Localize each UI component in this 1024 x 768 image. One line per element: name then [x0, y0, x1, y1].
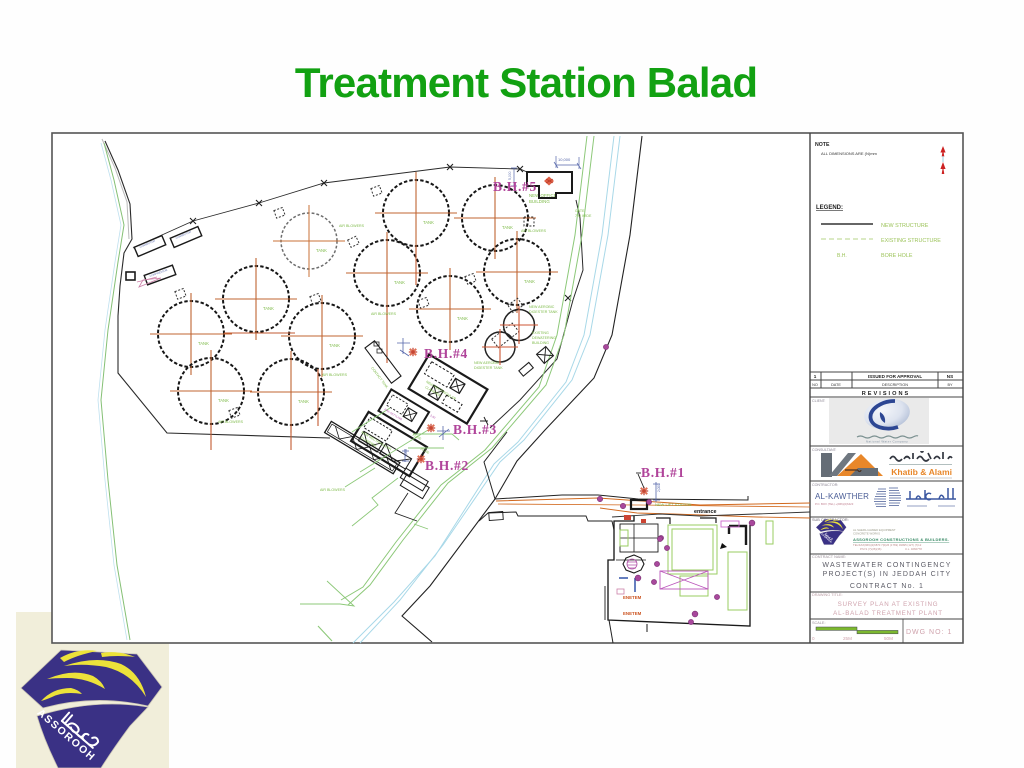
svg-text:PROJECT(S) IN JEDDAH CITY: PROJECT(S) IN JEDDAH CITY — [823, 571, 952, 578]
svg-text:SURVEY PLAN AT EXISTING: SURVEY PLAN AT EXISTING — [838, 601, 939, 608]
svg-text:3,000: 3,000 — [404, 449, 408, 457]
svg-text:entrance: entrance — [694, 509, 716, 515]
svg-text:B.H.#3: B.H.#3 — [453, 422, 497, 437]
svg-text:ENETEM: ENETEM — [623, 611, 642, 616]
svg-text:10,000: 10,000 — [558, 157, 571, 162]
svg-text:BORE HOLE: BORE HOLE — [881, 253, 913, 259]
svg-text:AL-KAWTHER: AL-KAWTHER — [815, 492, 869, 501]
svg-text:NEW LIFT STATION: NEW LIFT STATION — [655, 502, 692, 507]
svg-text:AIR BLOWERS: AIR BLOWERS — [320, 488, 346, 492]
svg-text:AL-BALAD TREATMENT PLANT: AL-BALAD TREATMENT PLANT — [833, 610, 943, 617]
svg-text:LEGEND:: LEGEND: — [816, 205, 843, 211]
svg-text:50M: 50M — [884, 636, 893, 641]
svg-text:7 M WIDE: 7 M WIDE — [575, 214, 592, 218]
svg-text:B.H.#4: B.H.#4 — [424, 346, 468, 361]
svg-text:National Water Company: National Water Company — [866, 440, 908, 444]
svg-text:NEW STRUCTURE: NEW STRUCTURE — [881, 223, 929, 229]
svg-text:DWG NO: 1: DWG NO: 1 — [906, 629, 952, 636]
svg-text:NEW AEROBIC: NEW AEROBIC — [474, 361, 500, 365]
svg-text:B.H.#1: B.H.#1 — [641, 465, 685, 480]
svg-text:CLIENT:: CLIENT: — [812, 399, 826, 403]
svg-text:CONCRETE WORKS: CONCRETE WORKS — [853, 532, 880, 536]
svg-text:Khatib & Alami: Khatib & Alami — [891, 467, 952, 477]
svg-text:DRAWING TITLE:: DRAWING TITLE: — [812, 593, 843, 597]
svg-text:CONSULTANT:: CONSULTANT: — [812, 448, 837, 452]
svg-text:ENETEM: ENETEM — [623, 595, 642, 600]
svg-text:BUILDING: BUILDING — [529, 199, 550, 204]
svg-text:NO: NO — [812, 383, 818, 387]
svg-text:B.H.#2: B.H.#2 — [425, 458, 469, 473]
svg-text:EXISTING: EXISTING — [532, 331, 549, 335]
svg-text:B.H.: B.H. — [837, 253, 847, 259]
svg-text:P.M.S (7)(26)(36): P.M.S (7)(26)(36) — [860, 547, 881, 551]
svg-text:DEWATERING: DEWATERING — [532, 336, 556, 340]
svg-text:SCALE:: SCALE: — [812, 621, 826, 625]
svg-text:REVISIONS: REVISIONS — [862, 391, 910, 397]
svg-text:U.L. 4060778: U.L. 4060778 — [905, 547, 922, 551]
svg-text:AIR BLOWERS: AIR BLOWERS — [371, 312, 397, 316]
svg-text:B.H.#5: B.H.#5 — [493, 179, 537, 194]
svg-text:WASTEWATER CONTINGENCY: WASTEWATER CONTINGENCY — [822, 562, 951, 569]
svg-text:1: 1 — [814, 374, 817, 379]
svg-text:25M: 25M — [843, 636, 852, 641]
svg-text:AIR BLOWERS: AIR BLOWERS — [339, 224, 365, 228]
svg-text:DIGESTER TANK: DIGESTER TANK — [529, 310, 558, 314]
svg-text:2,000: 2,000 — [657, 484, 661, 492]
svg-text:CONTRACTOR:: CONTRACTOR: — [812, 483, 838, 487]
svg-text:NEW AEROBIC: NEW AEROBIC — [529, 305, 555, 309]
svg-text:P.O. BOX (TEL) +(966)(2)6423: P.O. BOX (TEL) +(966)(2)6423 — [815, 502, 854, 506]
svg-text:ISSUED FOR APPROVAL: ISSUED FOR APPROVAL — [868, 374, 923, 379]
svg-text:DIGESTER TANK: DIGESTER TANK — [474, 366, 503, 370]
svg-text:AIR BLOWERS: AIR BLOWERS — [322, 373, 348, 377]
svg-text:ALL DIMENSIONS ARE (N)mm: ALL DIMENSIONS ARE (N)mm — [821, 151, 878, 156]
svg-text:DATE: DATE — [831, 383, 841, 387]
svg-text:AIR BLOWERS: AIR BLOWERS — [218, 420, 244, 424]
svg-text:DESCRIPTION: DESCRIPTION — [882, 383, 908, 387]
svg-text:CONTRACT No. 1: CONTRACT No. 1 — [850, 583, 924, 590]
svg-text:BUILDING: BUILDING — [532, 341, 549, 345]
svg-text:NOTE: NOTE — [815, 142, 830, 148]
svg-text:ASSOROOH CONSTRUCTIONS & BUILD: ASSOROOH CONSTRUCTIONS & BUILDERS. — [853, 537, 949, 542]
svg-text:BY: BY — [947, 383, 953, 387]
svg-text:TANK: TANK — [316, 248, 327, 253]
svg-text:GATE: GATE — [575, 209, 585, 213]
svg-text:AIR BLOWERS: AIR BLOWERS — [521, 229, 547, 233]
svg-text:EXISTING STRUCTURE: EXISTING STRUCTURE — [881, 238, 941, 244]
svg-text:0: 0 — [812, 636, 815, 641]
svg-text:CONTRACT NAME:: CONTRACT NAME: — [812, 555, 846, 559]
svg-text:NS: NS — [947, 374, 953, 379]
